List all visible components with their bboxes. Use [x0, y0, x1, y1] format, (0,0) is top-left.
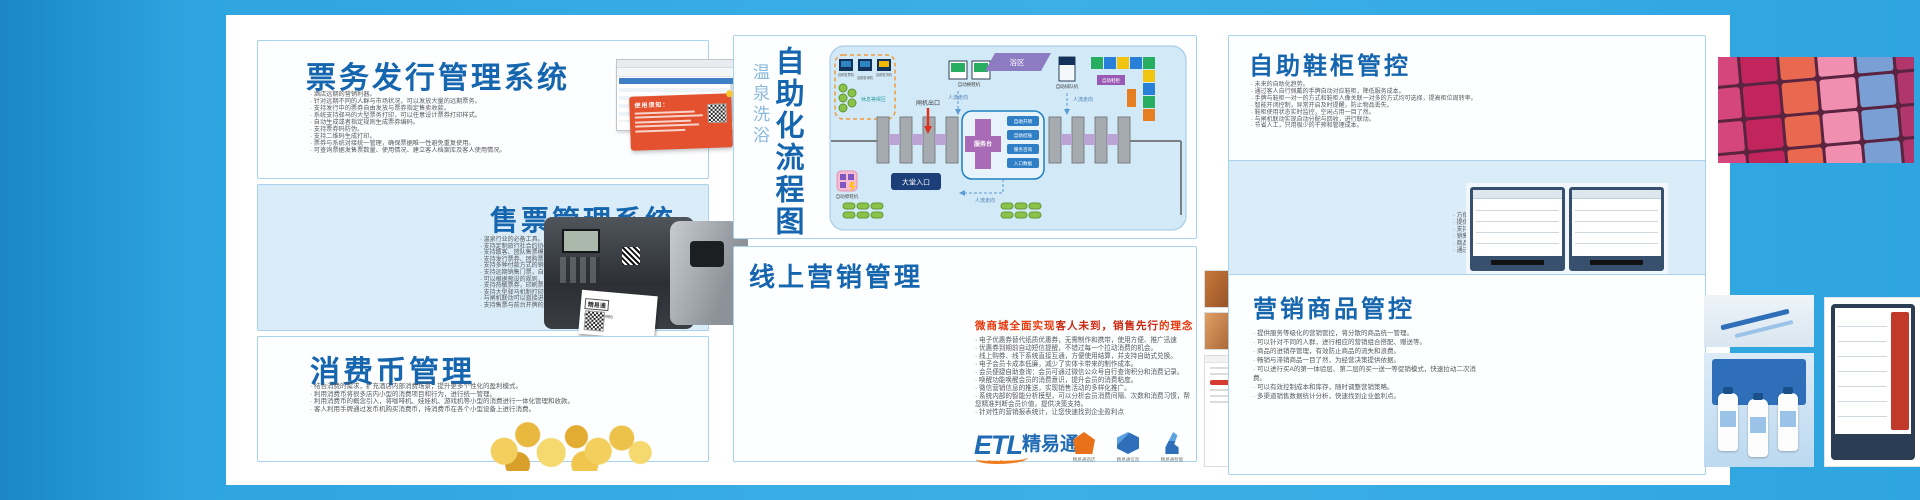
brand-tagline: Easy To Learn	[988, 459, 1017, 464]
bullet-item: 结合消费的需求，扩充酒店内部消费场景，提升更多个性化的盈利模式。	[310, 383, 574, 391]
chip-label: 自助结账	[1014, 132, 1033, 139]
polisher-grid	[848, 174, 854, 180]
brand-product-smart: 精易通智能	[1152, 432, 1192, 463]
cabinet-cell	[1091, 57, 1103, 69]
flowchart-main-title: 自助化流程图	[766, 46, 808, 238]
marketing-subtitle: 微商城全面实现客人未到，销售先行的理念	[975, 318, 1194, 333]
notice-line	[635, 123, 699, 127]
panel-ticket-issuing: 票务发行管理系统 酒店远期的营销利器。针对远期不同的人群与市场状况，可以发放大量…	[257, 40, 709, 179]
bullet-item: 系统支持驿马的大型票务打印，可以任意设计票券打印样式。	[310, 112, 506, 119]
notice-line	[635, 119, 691, 123]
machine-frame	[1831, 304, 1915, 460]
bullet-item: 通过客人自行佩戴的手牌自动对应鞋柜，降低服务成本。	[1251, 89, 1491, 96]
bullet-item: 提供服务等级化的营销管控，将分散的商品统一管理。	[1253, 329, 1481, 338]
notice-line	[635, 110, 695, 114]
goods-control-bullets: 提供服务等级化的营销管控，将分散的商品统一管理。可以针对不同的人群，进行相应的营…	[1253, 329, 1481, 401]
brand-product-hotel: 精易通酒店	[1064, 432, 1104, 463]
bullet-item: 商品的进销存管理，有效防止商品的流失和浪费。	[1253, 347, 1481, 356]
robot-icon	[1161, 432, 1183, 454]
ticket-issuing-bullets: 酒店远期的营销利器。针对远期不同的人群与市场状况，可以发放大量的远期票务。支持发…	[310, 91, 506, 154]
water-bottle	[1718, 393, 1738, 451]
marketing-bullets: 电子优惠券替代纸质优惠券，无需制作和携带，使用方便、推广迅速优惠券到期前自动短信…	[975, 337, 1193, 417]
bottled-water-photo	[1704, 353, 1814, 467]
seat	[857, 212, 869, 218]
kiosk-screen	[841, 61, 851, 67]
cabinet-side-unit	[1127, 89, 1136, 107]
gate-bar	[1118, 117, 1130, 163]
chip-label: 入口数据	[1014, 160, 1033, 167]
hotel-icon	[1073, 432, 1095, 454]
kiosk-screen	[860, 61, 870, 67]
machine-slot	[1590, 260, 1643, 265]
gate-bar	[1072, 117, 1084, 163]
qr-code	[707, 103, 727, 123]
machine-header	[1572, 190, 1661, 199]
bullet-item: 可以进行买A的第一体验层、第二层的买一送一等促销模式，快速拉动二次消费。	[1253, 365, 1481, 383]
cabinet-cell	[1117, 57, 1129, 69]
polisher-grid	[840, 182, 846, 188]
cabinet-cell	[1143, 96, 1155, 108]
chip-label: 服务咨询	[1014, 146, 1033, 153]
lobby-entrance-label: 大堂入口	[902, 178, 930, 187]
shoe-polisher-label: 自助擦鞋机	[836, 193, 859, 200]
shoe-cabinet-label: 自助鞋柜	[1102, 77, 1120, 84]
seat	[839, 84, 847, 92]
bullet-item: 电子优惠券替代纸质优惠券，无需制作和携带，使用方便、推广迅速	[975, 337, 1193, 345]
printer-window	[690, 241, 724, 267]
bullet-item: 票券与系统对接统一管理，确保票据唯一性避免重复使用。	[310, 140, 506, 147]
gate-exit-label: 闸机出口	[916, 99, 940, 107]
machine-goods	[1476, 200, 1559, 252]
window-titlebar	[617, 60, 735, 68]
gate-bar	[946, 117, 958, 163]
bullet-item: 针对性的营销报表统计，让您快速找到企业盈利点	[975, 409, 1193, 417]
query-kiosk-label: 自助查询机	[857, 75, 874, 80]
gate-bar	[1095, 117, 1107, 163]
vending-machine	[1569, 187, 1664, 271]
bullet-item: 唤醒功能唤醒会员的消费意识，提升会员的消费粘度。	[975, 377, 1193, 385]
shoe-cabinet-bullets: 未来的自助化趋势。通过客人自行佩戴的手牌自动对应鞋柜，降低服务成本。手牌与鞋柜一…	[1251, 82, 1491, 130]
seat	[1029, 203, 1041, 209]
queue-machine-label: 自助排队机	[1056, 83, 1079, 90]
brochure-board: 票务发行管理系统 酒店远期的营销利器。针对远期不同的人群与市场状况，可以发放大量…	[0, 0, 1920, 500]
seat	[843, 203, 855, 209]
panel-flowchart: 温泉洗浴 自助化流程图 自助售票机 自助查询机 自助售货机	[733, 35, 1197, 239]
cube-icon	[1117, 432, 1139, 454]
vending-machines-photo	[1466, 183, 1668, 275]
subtitle-post: 的理念	[1159, 320, 1194, 332]
gold-coins-photo	[484, 405, 652, 471]
panel-title: 自助鞋柜管控	[1249, 46, 1411, 81]
gate-bar	[877, 117, 889, 163]
cabinet-cell	[1143, 57, 1155, 69]
shoe-change-label: 自动换鞋机	[958, 81, 981, 88]
service-desk-label: 服务台	[974, 140, 992, 148]
seat	[839, 104, 847, 112]
bullet-item: 支持二维码生成打印。	[310, 133, 506, 140]
cabinet-cell	[1143, 83, 1155, 95]
brand-product-label: 精易通信息	[1108, 457, 1148, 463]
machine-top	[951, 63, 965, 72]
brand-product-info: 精易通信息	[1108, 432, 1148, 463]
seat	[1029, 212, 1041, 218]
seat	[1015, 203, 1027, 209]
bullet-item: 手牌与鞋柜一对一的方式和鞋柜人像关联一对多的方式均可选择，提高柜位周转率。	[1251, 96, 1491, 103]
bullet-item: 可查询票据发售票数量、使用情况、建立客人档案库及客人使用情况。	[310, 147, 506, 154]
bullet-item: 电子会员卡成本低廉，减少了实体卡带来的制作成本。	[975, 361, 1193, 369]
panel-title: 线上营销管理	[749, 257, 923, 294]
bullet-item: 微信营销信息的推送，实现销售活动的多样化推广。	[975, 385, 1193, 393]
bullet-item: 系统内部的智能分析模型，可以分析会员消费间隔、次数和消费习惯，帮您精准判断会员价…	[975, 393, 1193, 409]
gate-bar	[900, 117, 912, 163]
gate-bar	[1049, 117, 1061, 163]
gate-reader	[1107, 134, 1118, 145]
seat	[848, 89, 856, 97]
bullet-item: 节省人工，只用极少的干预和管理成本。	[1251, 123, 1491, 130]
gate-reader	[1084, 134, 1095, 145]
bullet-item: 可以针对不同的人群，进行相应的营销组合搭配、赠送等。	[1253, 338, 1481, 347]
panel-shoe-cabinet: 自助鞋柜管控 未来的自助化趋势。通过客人自行佩戴的手牌自动对应鞋柜，降低服务成本…	[1228, 35, 1706, 173]
label-printer-photo: 精易通 024-88680996	[522, 213, 762, 337]
water-bottle	[1748, 399, 1768, 457]
panel-goods-control: 营销商品管控 提供服务等级化的营销管控，将分散的商品统一管理。可以针对不同的人群…	[1228, 274, 1706, 475]
bullet-item: 智能开闭控制，异常开启及时提醒，防止物品丢失。	[1251, 103, 1491, 110]
cabinet-cell	[1143, 109, 1155, 121]
machine-goods	[1575, 200, 1658, 252]
waiting-zone-label: 休息等候区	[861, 96, 886, 103]
machine-slot	[1491, 260, 1544, 265]
seat	[871, 203, 883, 209]
machine-header	[1473, 190, 1562, 199]
kiosk-screen	[879, 61, 889, 67]
single-vending-machine-photo	[1824, 297, 1920, 467]
gate-reader	[935, 134, 946, 145]
notice-card: 使用须知：	[629, 93, 733, 151]
polisher-grid	[840, 174, 846, 180]
bullet-item: 针对远期不同的人群与市场状况，可以发放大量的远期票务。	[310, 98, 506, 105]
water-bottle	[1778, 393, 1798, 451]
flow-label: 人流走向	[948, 94, 968, 101]
bullet-item: 会员便捷自助查询：会员可通过微信公众号自行查询积分和消费记录。	[975, 369, 1193, 377]
printer-lcd	[562, 229, 600, 253]
shoe-lockers-photo	[1718, 57, 1914, 163]
product-kit-photo	[1704, 295, 1814, 347]
window-toolbar	[617, 68, 735, 77]
locker-grid	[1718, 57, 1914, 163]
vending-kiosk-label: 自助售货机	[876, 72, 893, 77]
bullet-item: 畅销与滞销商品一目了然，为经营决策提供依据。	[1253, 356, 1481, 365]
flowchart-diagram: 自助售票机 自助查询机 自助售货机 休息等候区 自助擦鞋机	[829, 45, 1187, 231]
bullet-item: 可以有效控制成本和库存，随时调整营销策略。	[1253, 383, 1481, 392]
bath-zone-label: 浴区	[1010, 57, 1026, 67]
cabinet-cell	[1143, 70, 1155, 82]
brand-product-label: 精易通酒店	[1064, 457, 1104, 463]
seat	[839, 94, 847, 102]
machine-side-panel	[1891, 312, 1909, 430]
machine-base	[1835, 434, 1911, 456]
cabinet-cell	[1130, 57, 1142, 69]
gate-reader	[1061, 134, 1072, 145]
gate-reader	[889, 134, 900, 145]
subtitle-pre: 微商城全面实现	[975, 320, 1056, 332]
flow-label: 人流走向	[1073, 96, 1093, 103]
gate-reader	[912, 134, 923, 145]
brand-product-label: 精易通智能	[1152, 457, 1192, 463]
seat	[871, 212, 883, 218]
kiosk-icons	[839, 59, 891, 71]
seat	[1015, 212, 1027, 218]
chip-label: 自助开牌	[1014, 118, 1033, 125]
bullet-item: 多渠道销售数据统计分析，快速找到企业盈利点。	[1253, 392, 1481, 401]
panel-title: 营销商品管控	[1253, 289, 1415, 324]
bullet-item: 支持发行中的票券自由发放与票券指定售卖收款。	[310, 105, 506, 112]
bullet-item: 优惠券到期前自动短信提醒，不错过每一个拉动消费的机会。	[975, 345, 1193, 353]
cabinet-cell	[1104, 57, 1116, 69]
label-brand: 精易通	[584, 298, 609, 311]
seat	[1001, 212, 1013, 218]
subtitle-emphasis: 客人未到，销售先行	[1056, 320, 1160, 332]
seat	[1001, 203, 1013, 209]
notice-line	[635, 114, 703, 118]
bullet-item: 酒店远期的营销利器。	[310, 91, 506, 98]
notice-line	[635, 128, 685, 132]
zebra-logo	[622, 247, 640, 265]
seat	[848, 99, 856, 107]
bullet-item: 支持票券码防伪。	[310, 126, 506, 133]
flow-label: 人流走向	[975, 197, 995, 204]
queue-machine-top	[1059, 57, 1075, 65]
bullet-item: 线上购券、线下系统直接互通，方便使用结算，并支持自助式兑换。	[975, 353, 1193, 361]
seat	[857, 203, 869, 209]
printed-label: 精易通 024-88680996	[578, 290, 658, 340]
vending-machine	[1470, 187, 1565, 271]
bullet-item: 自动生成或者指定规则生成票券编码。	[310, 119, 506, 126]
bullet-item: 未来的自助化趋势。	[1251, 82, 1491, 89]
label-qr-code	[584, 310, 606, 332]
machine-goods	[1838, 312, 1887, 430]
printer-keypad	[560, 257, 600, 283]
bullet-item: 鞋柜使用状态实时监控，空闲占用一目了然。	[1251, 110, 1491, 117]
ticket-kiosk-label: 自助售票机	[838, 72, 855, 77]
content-area: 票务发行管理系统 酒店远期的营销利器。针对远期不同的人群与市场状况，可以发放大量…	[226, 15, 1730, 485]
seat	[843, 212, 855, 218]
